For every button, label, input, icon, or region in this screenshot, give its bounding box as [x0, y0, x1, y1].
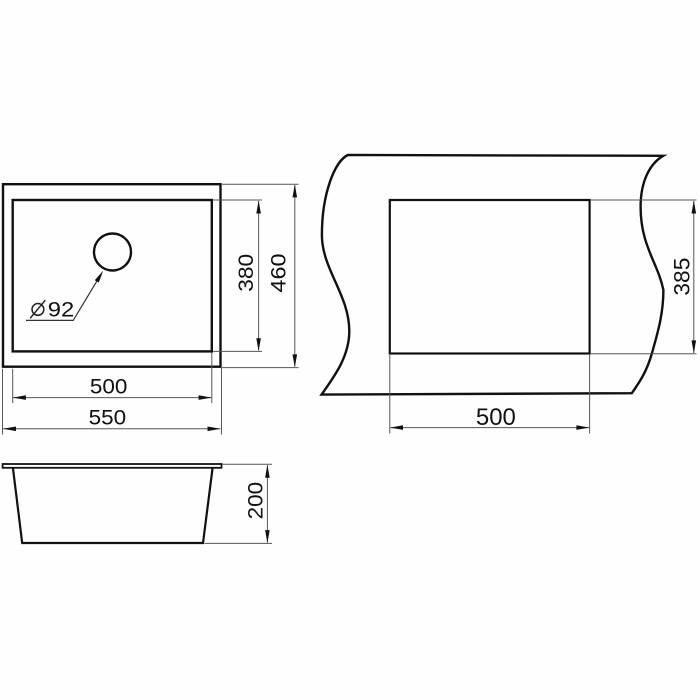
svg-text:92: 92 — [48, 298, 75, 322]
svg-text:500: 500 — [90, 376, 128, 399]
svg-text:460: 460 — [268, 254, 291, 293]
svg-text:385: 385 — [670, 258, 695, 296]
svg-text:380: 380 — [235, 254, 258, 292]
svg-text:500: 500 — [476, 404, 516, 431]
svg-text:550: 550 — [89, 407, 127, 430]
svg-text:200: 200 — [243, 482, 267, 520]
